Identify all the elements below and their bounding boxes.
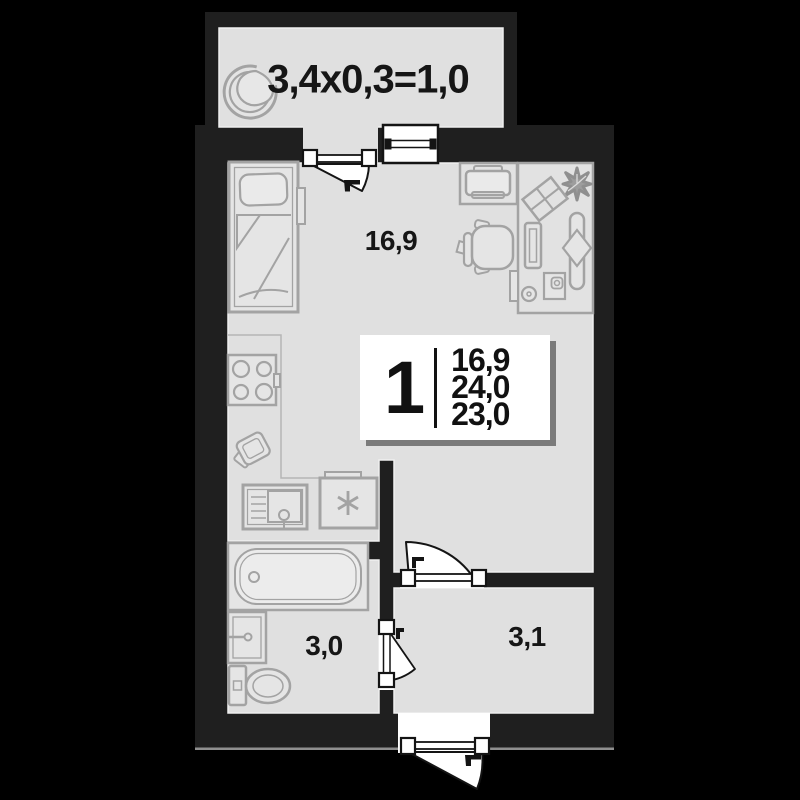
card-divider	[434, 348, 437, 428]
washing-machine-icon	[243, 485, 307, 529]
floor-plan: 3,4x0,3=1,0 16,9 3,0 3,1 1 16,9 24,0 23,…	[0, 0, 800, 800]
balcony-dimensions-label: 3,4x0,3=1,0	[267, 58, 468, 103]
reduced-area-value: 23,0	[451, 401, 509, 428]
bed-icon	[229, 162, 305, 312]
mouse-icon	[522, 287, 536, 301]
room-count: 1	[384, 351, 422, 425]
bathtub-icon	[228, 543, 368, 610]
stove-icon	[228, 355, 280, 405]
living-room-area-label: 16,9	[365, 225, 418, 257]
bathroom-area-label: 3,0	[305, 630, 342, 662]
fridge-icon	[320, 472, 377, 528]
washbasin-icon	[228, 612, 266, 663]
hallway-area-label: 3,1	[508, 621, 545, 653]
plant-icon	[563, 168, 591, 200]
toilet-icon	[229, 666, 290, 705]
window-icon	[383, 125, 438, 163]
desk-accessory-icon	[544, 273, 565, 299]
monitor-icon	[525, 223, 541, 268]
area-values: 16,9 24,0 23,0	[451, 347, 509, 428]
desk-side-unit	[510, 271, 518, 301]
printer-icon	[466, 166, 510, 198]
apartment-info-card: 1 16,9 24,0 23,0	[360, 335, 550, 440]
hallway-floor	[394, 588, 593, 713]
